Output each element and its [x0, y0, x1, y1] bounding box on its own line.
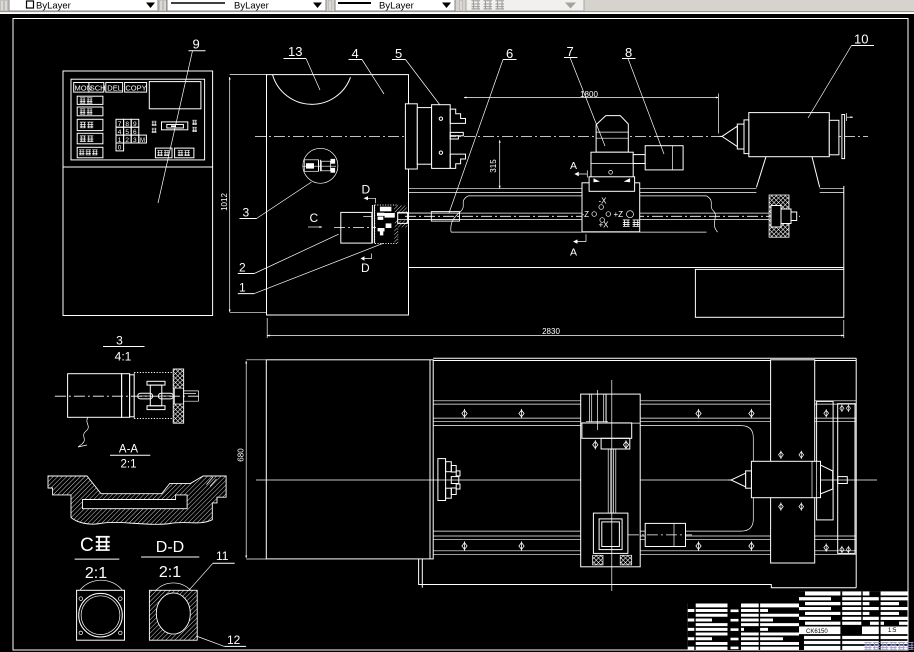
- svg-text:4:1: 4:1: [115, 350, 132, 364]
- svg-text:2: 2: [125, 137, 129, 144]
- svg-text:-X: -X: [599, 197, 608, 206]
- svg-text:1:5: 1:5: [888, 628, 897, 634]
- svg-text:0: 0: [118, 145, 122, 152]
- svg-text:D: D: [361, 261, 370, 275]
- svg-text:3: 3: [243, 206, 250, 220]
- svg-text:3: 3: [133, 137, 137, 144]
- svg-text:CK6150: CK6150: [806, 629, 828, 635]
- svg-text:ByLayer: ByLayer: [36, 1, 71, 12]
- svg-text:C: C: [80, 535, 94, 556]
- svg-text:2:1: 2:1: [159, 564, 181, 581]
- svg-text:1: 1: [239, 281, 246, 295]
- svg-text:3: 3: [116, 334, 123, 348]
- svg-text:C: C: [310, 211, 319, 225]
- svg-text:9: 9: [193, 37, 200, 52]
- svg-text:-Z: -Z: [582, 210, 590, 219]
- svg-text:A-A: A-A: [119, 444, 139, 456]
- svg-text:11: 11: [216, 549, 229, 563]
- svg-text:10: 10: [854, 32, 868, 47]
- svg-text:2:1: 2:1: [121, 459, 137, 471]
- svg-text:DEL: DEL: [107, 84, 122, 93]
- svg-text:+Z: +Z: [614, 210, 624, 219]
- svg-text:A: A: [570, 160, 577, 172]
- svg-text:2: 2: [239, 261, 246, 275]
- svg-text:315: 315: [489, 159, 498, 173]
- svg-text:2830: 2830: [542, 327, 560, 336]
- svg-text:A: A: [570, 247, 577, 259]
- svg-text:ByLayer: ByLayer: [379, 1, 414, 12]
- svg-text:COPY: COPY: [125, 84, 146, 93]
- svg-text:7: 7: [567, 44, 574, 59]
- svg-text:1800: 1800: [580, 90, 598, 99]
- svg-text:4: 4: [352, 46, 359, 61]
- svg-text:D: D: [362, 183, 371, 197]
- svg-text:2:1: 2:1: [85, 565, 107, 582]
- svg-text:5: 5: [395, 46, 402, 61]
- svg-text:680: 680: [237, 448, 246, 462]
- svg-text:ByLayer: ByLayer: [234, 1, 269, 12]
- svg-text:6: 6: [506, 46, 513, 61]
- svg-text:8: 8: [625, 45, 632, 60]
- svg-text:1012: 1012: [220, 193, 229, 211]
- svg-text:M: M: [140, 138, 145, 144]
- svg-text:SCH: SCH: [90, 84, 106, 93]
- svg-text:13: 13: [288, 44, 302, 59]
- svg-text:D-D: D-D: [156, 539, 184, 556]
- svg-text:12: 12: [227, 633, 241, 647]
